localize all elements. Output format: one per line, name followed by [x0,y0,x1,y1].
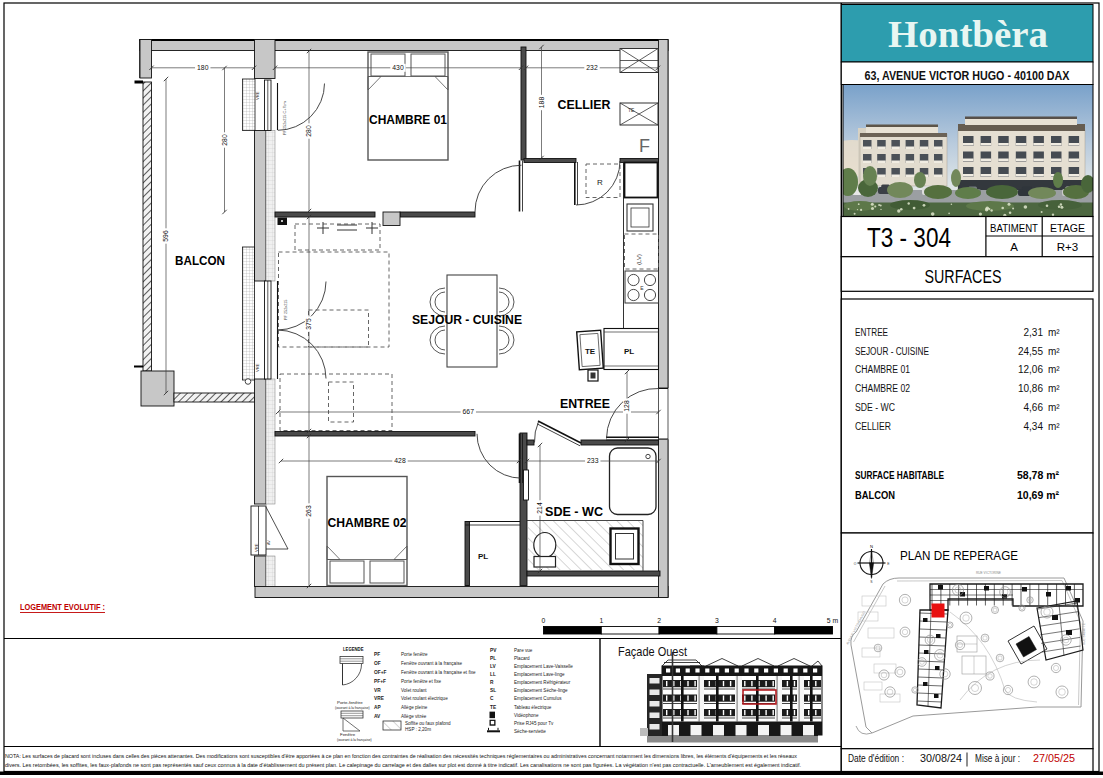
svg-text:LL: LL [490,672,496,677]
svg-text:C: C [490,696,494,701]
svg-text:PV: PV [490,648,497,653]
svg-text:27/05/25: 27/05/25 [1033,752,1075,764]
svg-text:0: 0 [542,617,546,624]
svg-text:VRE: VRE [255,363,260,372]
svg-text:SDE - WC: SDE - WC [545,504,603,519]
svg-text:OF+F: OF+F [374,670,386,675]
svg-text:PL: PL [478,552,488,561]
svg-text:63, AVENUE VICTOR HUGO - 40100: 63, AVENUE VICTOR HUGO - 40100 DAX [865,68,1070,83]
svg-text:RUE SABATTE: RUE SABATTE [1082,623,1086,645]
svg-text:233: 233 [587,457,599,464]
svg-text:ENTREE: ENTREE [560,396,610,411]
svg-text:Porte fenêtre: Porte fenêtre [401,652,428,657]
svg-text:ETAGE: ETAGE [1050,222,1085,234]
svg-text:Porte fenêtre et fixe: Porte fenêtre et fixe [401,679,442,684]
svg-text:BATIMENT: BATIMENT [990,222,1039,234]
svg-text:NOTA: Les surfaces de placard: NOTA: Les surfaces de placard sont inclu… [5,753,797,759]
svg-text:667: 667 [463,408,475,415]
svg-text:AV: AV [374,714,381,719]
svg-text:58,78 m²: 58,78 m² [1017,469,1060,481]
svg-text:VRE: VRE [254,543,259,552]
svg-text:Emplacement Sèche-linge: Emplacement Sèche-linge [514,688,568,693]
svg-text:TE: TE [490,705,497,710]
svg-text:m²: m² [1048,421,1060,432]
svg-text:RUE VICTORINE: RUE VICTORINE [976,571,1001,575]
svg-text:AP: AP [374,705,381,710]
svg-text:OF: OF [374,661,381,666]
svg-text:SL: SL [490,688,496,693]
svg-text:232: 232 [586,64,598,71]
svg-text:PF+F: PF+F [374,679,386,684]
svg-text:Emplacement Réfrigérateur: Emplacement Réfrigérateur [514,680,571,685]
svg-text:Allège pleine: Allège pleine [401,705,428,710]
svg-text:(LV): (LV) [636,254,642,265]
svg-text:m²: m² [1048,346,1060,357]
svg-text:(ouvrant à la française): (ouvrant à la française) [335,706,370,710]
svg-text:O: O [854,562,857,566]
svg-text:5 m: 5 m [827,617,839,624]
svg-text:A: A [1010,241,1018,253]
svg-text:SEJOUR - CUISINE: SEJOUR - CUISINE [855,346,929,357]
svg-text:280: 280 [305,125,312,137]
svg-text:LOGEMENT EVOLUTIF :: LOGEMENT EVOLUTIF : [20,602,105,612]
svg-text:(ouvrant à la française): (ouvrant à la française) [337,738,372,742]
svg-text:CHAMBRE 02: CHAMBRE 02 [855,383,910,394]
svg-text:180: 180 [197,64,209,71]
svg-text:10,69 m²: 10,69 m² [1017,489,1060,501]
svg-text:PL: PL [490,656,496,661]
svg-text:Porte-fenêtre: Porte-fenêtre [337,700,363,705]
svg-text:596: 596 [162,230,169,242]
svg-text:Hontbèra: Hontbèra [888,13,1048,55]
svg-text:PL: PL [624,347,634,356]
svg-text:Fenêtre ouvrant à la française: Fenêtre ouvrant à la française [401,661,462,666]
svg-text:375: 375 [305,318,312,330]
svg-text:CHAMBRE 01: CHAMBRE 01 [369,112,447,127]
svg-text:Soffite ou faux plafond: Soffite ou faux plafond [405,721,451,726]
svg-text:Volet roulant: Volet roulant [401,688,427,693]
svg-text:SDE - WC: SDE - WC [855,402,895,413]
svg-text:ENTREE: ENTREE [855,327,888,338]
svg-text:24,55: 24,55 [1018,346,1043,357]
svg-text:CELLIER: CELLIER [855,421,891,432]
svg-text:263: 263 [305,505,312,517]
svg-text:Emplacement Lave-Vaisselle: Emplacement Lave-Vaisselle [514,664,573,669]
svg-text:SURFACES: SURFACES [925,266,1002,287]
svg-text:PF: PF [374,652,380,657]
svg-text:PF 252x215: PF 252x215 [284,300,288,320]
svg-text:Allège vitrée: Allège vitrée [401,714,427,719]
svg-text:R: R [597,178,603,187]
svg-text:Tableau électrique: Tableau électrique [514,705,552,710]
svg-text:128: 128 [623,400,630,412]
svg-text:30/08/24: 30/08/24 [920,752,962,764]
svg-text:TE: TE [628,107,635,113]
svg-text:VRE: VRE [374,696,385,701]
svg-text:2,31: 2,31 [1024,327,1044,338]
svg-text:CHAMBRE 01: CHAMBRE 01 [855,364,910,375]
svg-text:CELLIER: CELLIER [558,97,611,112]
svg-text:10,86: 10,86 [1018,383,1043,394]
svg-text:BALCON: BALCON [855,490,895,501]
svg-text:Façade Ouest: Façade Ouest [618,644,687,659]
svg-text:m²: m² [1048,364,1060,375]
svg-text:280: 280 [221,134,228,146]
svg-text:188: 188 [538,97,545,109]
svg-text:Vidéophone: Vidéophone [514,713,539,718]
svg-text:Fenêtre ouvrant à la française: Fenêtre ouvrant à la française et fixe [401,670,476,675]
svg-text:4: 4 [773,617,777,624]
svg-text:TE: TE [585,347,596,356]
svg-text:N: N [870,544,873,549]
svg-text:2: 2 [657,617,661,624]
svg-text:LV: LV [490,664,497,669]
svg-text:m²: m² [1048,383,1060,394]
svg-text:R: R [490,680,494,685]
svg-text:Emplacement Cumulus: Emplacement Cumulus [514,696,562,701]
svg-text:3: 3 [715,617,719,624]
svg-text:12,06: 12,06 [1018,364,1043,375]
svg-text:214: 214 [536,502,543,514]
svg-text:VR: VR [374,688,381,693]
svg-text:Date d'édition :: Date d'édition : [848,752,904,764]
svg-text:Prise RJ45 pour Tv: Prise RJ45 pour Tv [514,721,554,726]
svg-text:Pare vue: Pare vue [514,648,533,653]
svg-text:SURFACE HABITABLE: SURFACE HABITABLE [855,470,944,481]
svg-text:CHAMBRE 02: CHAMBRE 02 [328,515,407,530]
svg-text:4,66: 4,66 [1024,402,1044,413]
svg-text:430: 430 [392,64,404,71]
svg-text:LEGENDE: LEGENDE [343,646,364,652]
svg-text:R+3: R+3 [1057,241,1078,253]
svg-text:1: 1 [599,617,603,624]
svg-text:Mise à jour :: Mise à jour : [975,752,1020,764]
svg-text:T3 - 304: T3 - 304 [867,223,951,253]
svg-text:VRE: VRE [255,91,260,100]
svg-text:AV: AV [267,540,271,545]
svg-text:divers. Les retombées, les sof: divers. Les retombées, les soffites, les… [5,762,801,768]
svg-text:BALCON: BALCON [175,253,225,268]
svg-text:4,34: 4,34 [1024,421,1044,432]
svg-text:m²: m² [1048,402,1060,413]
svg-text:Placard: Placard [514,656,530,661]
svg-text:428: 428 [394,457,406,464]
svg-text:PLAN DE REPERAGE: PLAN DE REPERAGE [900,548,1018,563]
svg-text:F: F [639,136,650,156]
svg-text:Emplacement Lave-linge: Emplacement Lave-linge [514,672,565,677]
svg-text:SEJOUR - CUISINE: SEJOUR - CUISINE [412,312,522,327]
svg-text:Fenêtre: Fenêtre [340,732,356,737]
svg-text:Sèche-serviette: Sèche-serviette [514,729,546,734]
svg-text:m²: m² [1048,327,1060,338]
svg-text:Volet roulant électrique: Volet roulant électrique [401,696,448,701]
svg-text:HSP : 2,20m: HSP : 2,20m [405,727,431,732]
